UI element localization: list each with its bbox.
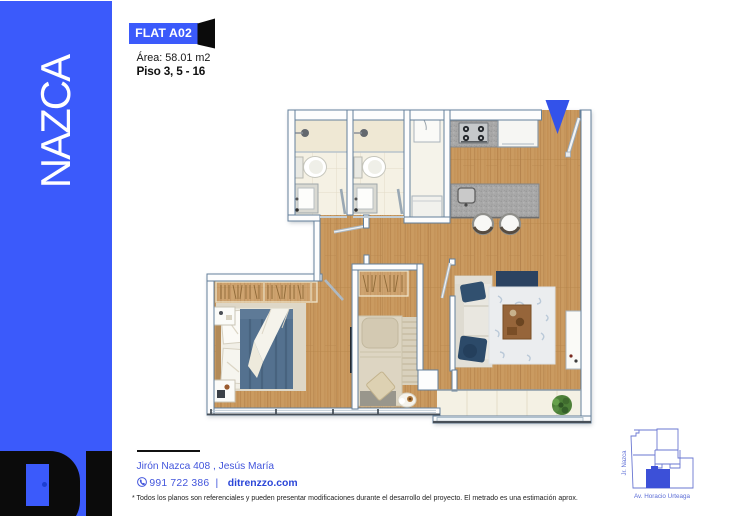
svg-text:Av. Horacio Urteaga: Av. Horacio Urteaga bbox=[634, 493, 691, 500]
svg-text:Jr. Nazca: Jr. Nazca bbox=[622, 450, 628, 476]
